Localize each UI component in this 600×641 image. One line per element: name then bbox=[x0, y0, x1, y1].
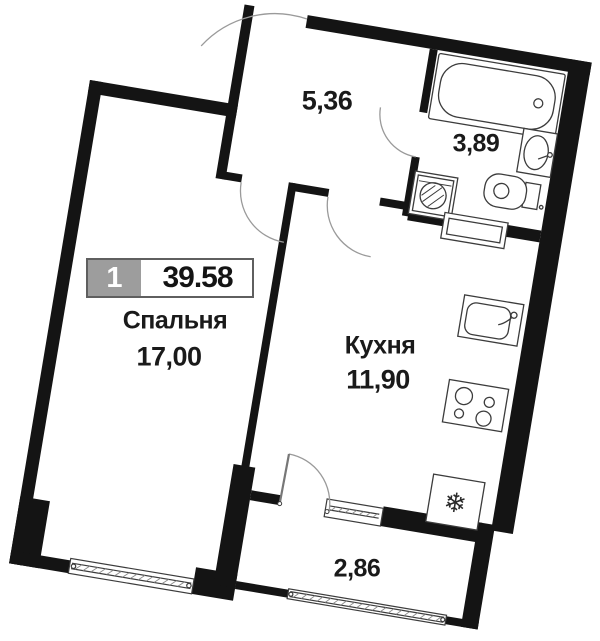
kitchen-door-arc bbox=[319, 197, 379, 257]
wall-exterior-left bbox=[9, 80, 103, 565]
floor-plan-drawing: ❄ bbox=[0, 0, 600, 641]
fridge-icon: ❄ bbox=[426, 474, 485, 530]
unit-total-area: 39.58 bbox=[143, 260, 252, 296]
bedroom-area-label: 17,00 bbox=[136, 344, 201, 371]
kitchen-name-label: Кухня bbox=[345, 334, 416, 359]
wall-balcony-bottom-left bbox=[235, 581, 289, 598]
balcony-area-label: 2,86 bbox=[334, 557, 381, 582]
bathroom-door-arc bbox=[373, 107, 423, 157]
balcony-window bbox=[287, 589, 446, 625]
toilet-icon bbox=[482, 172, 547, 215]
wall-partition-bedroom-kitchen bbox=[241, 182, 297, 471]
wall-pillar-balcony-left bbox=[213, 464, 255, 588]
balcony-block-window bbox=[324, 499, 383, 526]
wall-corridor-mid bbox=[290, 183, 329, 197]
kitchen-sink-icon bbox=[458, 295, 524, 346]
vent-shaft bbox=[441, 212, 508, 248]
bedroom-name-label: Спальня bbox=[123, 309, 228, 334]
balcony-door-leaf bbox=[280, 454, 289, 503]
entrance-door-arc bbox=[201, 1, 307, 62]
wall-corridor-stub-left bbox=[222, 171, 242, 182]
kitchen-area-label: 11,90 bbox=[346, 367, 410, 394]
stove-icon bbox=[442, 379, 508, 431]
windows bbox=[68, 459, 462, 636]
wall-bedroom-top bbox=[88, 80, 238, 118]
unit-number: 1 bbox=[88, 260, 143, 296]
balcony-door-jamb-left bbox=[277, 501, 282, 506]
wall-kitchen-balcony-stub bbox=[250, 490, 281, 505]
hallway-area-label: 5,36 bbox=[302, 88, 353, 115]
floor-plan-page: ❄ 5,36 3,89 Спальня 17,00 Кухня 11,90 2,… bbox=[0, 0, 600, 641]
balcony-door-jamb-right bbox=[325, 509, 330, 514]
unit-badge: 1 39.58 bbox=[86, 258, 254, 298]
wall-hallway-left bbox=[216, 5, 255, 180]
bathroom-area-label: 3,89 bbox=[453, 132, 500, 157]
bedroom-window bbox=[68, 558, 194, 593]
bathroom-sink-icon bbox=[517, 128, 558, 177]
